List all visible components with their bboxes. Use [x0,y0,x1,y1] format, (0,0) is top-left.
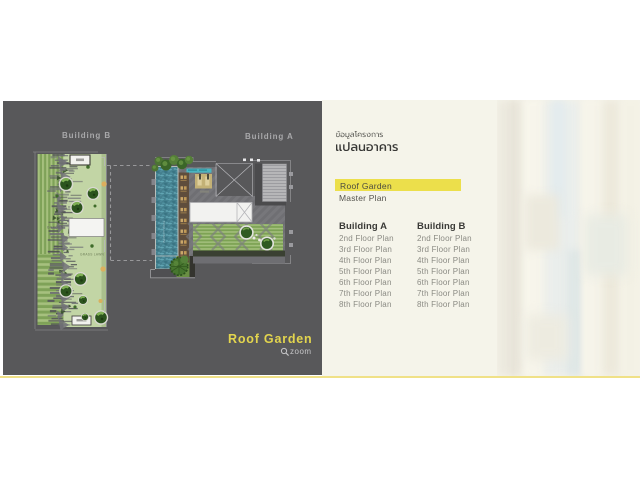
svg-text:GARDEN: GARDEN [47,226,64,230]
svg-text:INFINITY POOL: INFINITY POOL [162,220,166,243]
svg-text:GRASS LAWN: GRASS LAWN [80,253,105,257]
